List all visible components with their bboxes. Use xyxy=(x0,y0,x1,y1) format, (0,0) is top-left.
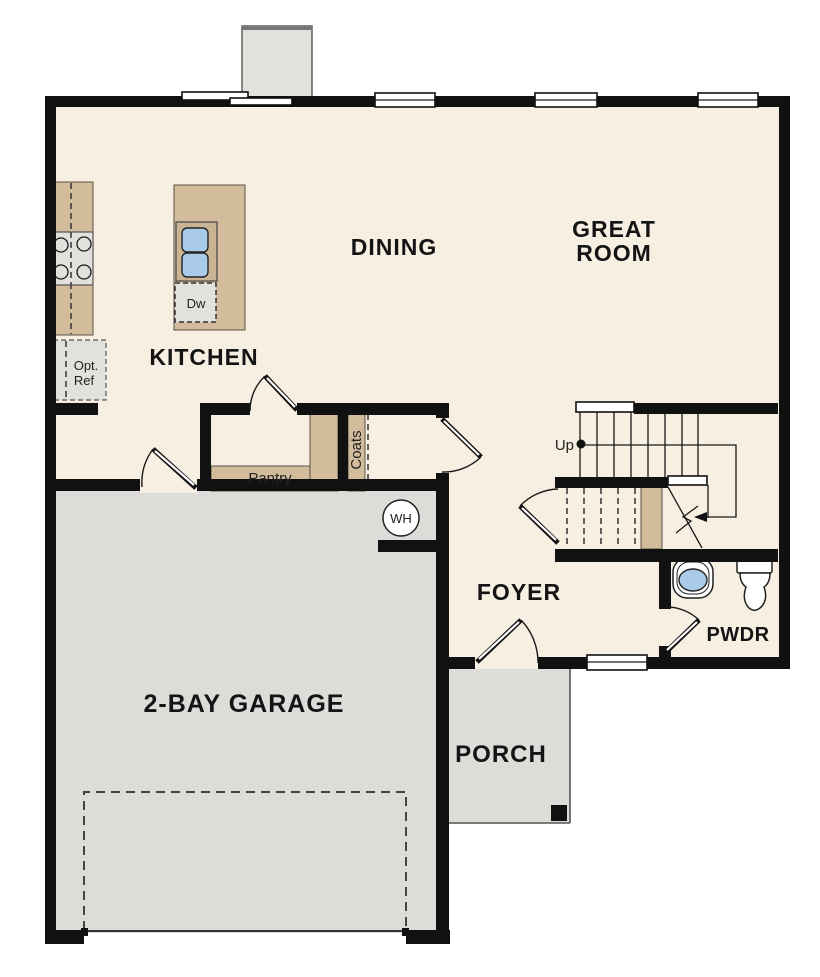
wall-wh-stub xyxy=(378,540,449,552)
wall-greatroom-south xyxy=(634,403,778,414)
floor-plan: DINING GREAT ROOM KITCHEN FOYER PWDR POR… xyxy=(0,0,820,977)
feature-label-up: Up xyxy=(555,437,574,454)
wall-garage-north xyxy=(45,479,449,491)
feature-label-pantry: Pantry xyxy=(248,470,292,487)
feature-label-coats: Coats xyxy=(348,430,365,469)
wall-stair-mid xyxy=(555,477,668,488)
wall-left xyxy=(45,96,56,944)
room-label-powder: PWDR xyxy=(706,624,769,646)
stair-opening-top xyxy=(576,402,634,412)
powder-sink-icon xyxy=(673,558,713,598)
stove-icon xyxy=(50,232,93,285)
room-label-foyer: FOYER xyxy=(477,579,561,605)
wall-garage-east xyxy=(436,403,449,944)
wall-right xyxy=(779,96,790,669)
stair-opening-turn xyxy=(668,476,707,485)
up-start-dot xyxy=(577,440,586,449)
chimney xyxy=(242,26,312,97)
wall-garage-south-left xyxy=(45,930,84,944)
room-label-dining: DINING xyxy=(351,234,438,260)
room-label-garage: 2-BAY GARAGE xyxy=(144,690,345,718)
wall-stair-south xyxy=(555,549,778,562)
floor-plan-drawing: DINING GREAT ROOM KITCHEN FOYER PWDR POR… xyxy=(0,0,820,977)
wall-pantry-west xyxy=(200,403,211,491)
room-label-great-room-line1: GREAT xyxy=(572,216,656,242)
room-label-kitchen: KITCHEN xyxy=(149,344,258,370)
feature-label-water-heater: WH xyxy=(390,511,412,526)
wall-garage-south-right xyxy=(406,930,450,944)
window-top-4 xyxy=(698,93,758,107)
feature-label-dishwasher: Dw xyxy=(187,296,206,311)
wall-pantry-north xyxy=(200,403,445,415)
window-south xyxy=(587,655,647,670)
feature-label-opt-ref-line2: Ref xyxy=(74,373,95,388)
wall-pantry-coats-divider xyxy=(338,413,348,491)
feature-label-opt-ref-line1: Opt. xyxy=(74,358,99,373)
porch-column xyxy=(551,805,567,821)
sink-icon xyxy=(176,222,217,281)
window-top-2 xyxy=(375,93,435,107)
window-top-3 xyxy=(535,93,597,107)
wall-kitchen-stub xyxy=(45,403,98,415)
chimney-cap xyxy=(242,26,312,30)
wall-powder-west xyxy=(659,562,671,609)
room-label-great-room-line2: ROOM xyxy=(576,240,652,266)
room-label-porch: PORCH xyxy=(455,741,547,768)
